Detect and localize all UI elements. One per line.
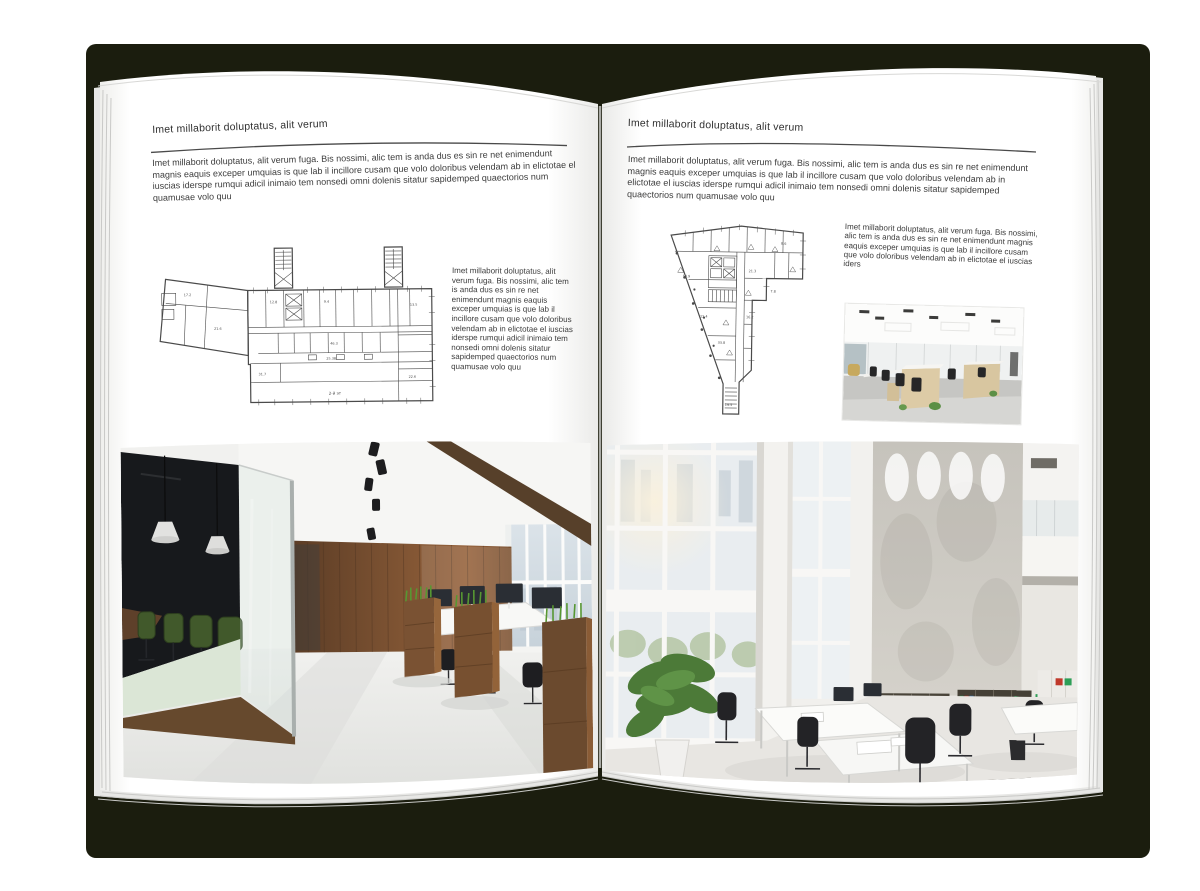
- photo-office-atrium: [605, 440, 1079, 791]
- photo-office-woodwall: [120, 440, 593, 790]
- room-label: 21.6: [214, 327, 222, 331]
- first-aid-sign: [1056, 678, 1063, 685]
- room-label: 31.7: [259, 372, 267, 376]
- floorplan-left: 17.2 21.6 12.8 9.4 13.5 46.3 25.38 31.7 …: [157, 235, 441, 412]
- meeting-room: [120, 443, 296, 746]
- room-label: 17.2: [184, 293, 192, 297]
- concrete-wall: [872, 441, 1024, 696]
- brochure-mockup: Imet millaborit doluptatus, alit verum I…: [0, 0, 1200, 891]
- safety-sign: [1065, 678, 1072, 685]
- photo-office-small: [843, 304, 1024, 425]
- right-side-text: Imet millaborit doluptatus, alit verum f…: [843, 222, 1041, 276]
- floorplan-right: 14.9 21.3 8.6 12.4 33.8 16.2 7.8 19.5: [649, 219, 816, 419]
- room-label: 12.4: [700, 315, 708, 319]
- room-label: 8.6: [781, 242, 786, 246]
- room-label: 14.9: [683, 274, 691, 278]
- left-side-text: Imet millaborit doluptatus, alit verum f…: [451, 266, 574, 373]
- ceiling: [845, 304, 1024, 349]
- lounge-chair: [848, 364, 860, 376]
- room-label: 25.38: [326, 357, 336, 361]
- right-title-rule: [626, 139, 1040, 157]
- room-label: 9.4: [324, 300, 329, 304]
- room-label: 21.3: [749, 269, 757, 273]
- room-label: 16.2: [746, 315, 754, 319]
- mezzanine: [1022, 442, 1080, 697]
- room-label: 13.5: [410, 303, 418, 307]
- room-label: 12.8: [270, 300, 278, 304]
- photo-office-woodwall-art: [120, 440, 593, 790]
- photo-office-atrium-art: [605, 440, 1079, 791]
- room-label: 19.5: [725, 403, 733, 407]
- room-label: 46.3: [330, 342, 338, 346]
- doorway: [1010, 352, 1019, 376]
- room-label: 33.8: [718, 341, 726, 345]
- right-intro-paragraph: Imet millaborit doluptatus, alit verum f…: [627, 154, 1040, 210]
- floor-label: 2-й эт: [329, 391, 342, 396]
- room-label: 22.6: [409, 375, 417, 379]
- waste-bin: [1009, 740, 1025, 760]
- room-label: 7.8: [770, 290, 775, 294]
- side-desk: [1001, 702, 1077, 734]
- glass-wall: [239, 465, 295, 735]
- photo-office-small-art: [843, 304, 1024, 425]
